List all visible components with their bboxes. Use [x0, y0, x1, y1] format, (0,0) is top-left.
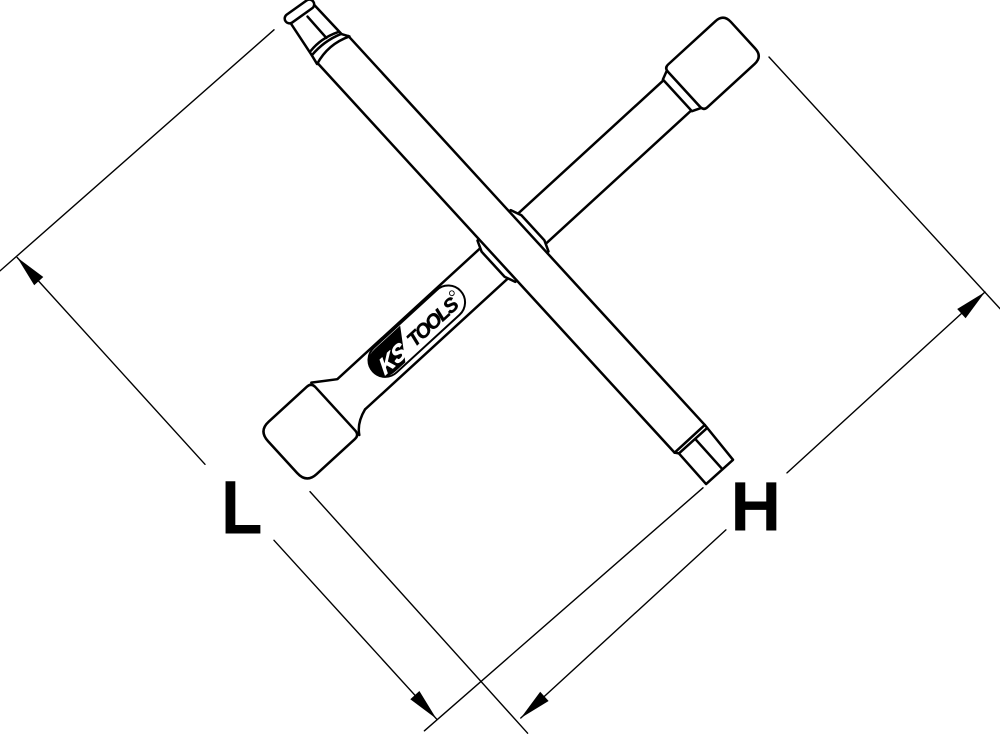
svg-text:H: H [731, 468, 782, 546]
svg-text:L: L [221, 466, 263, 551]
